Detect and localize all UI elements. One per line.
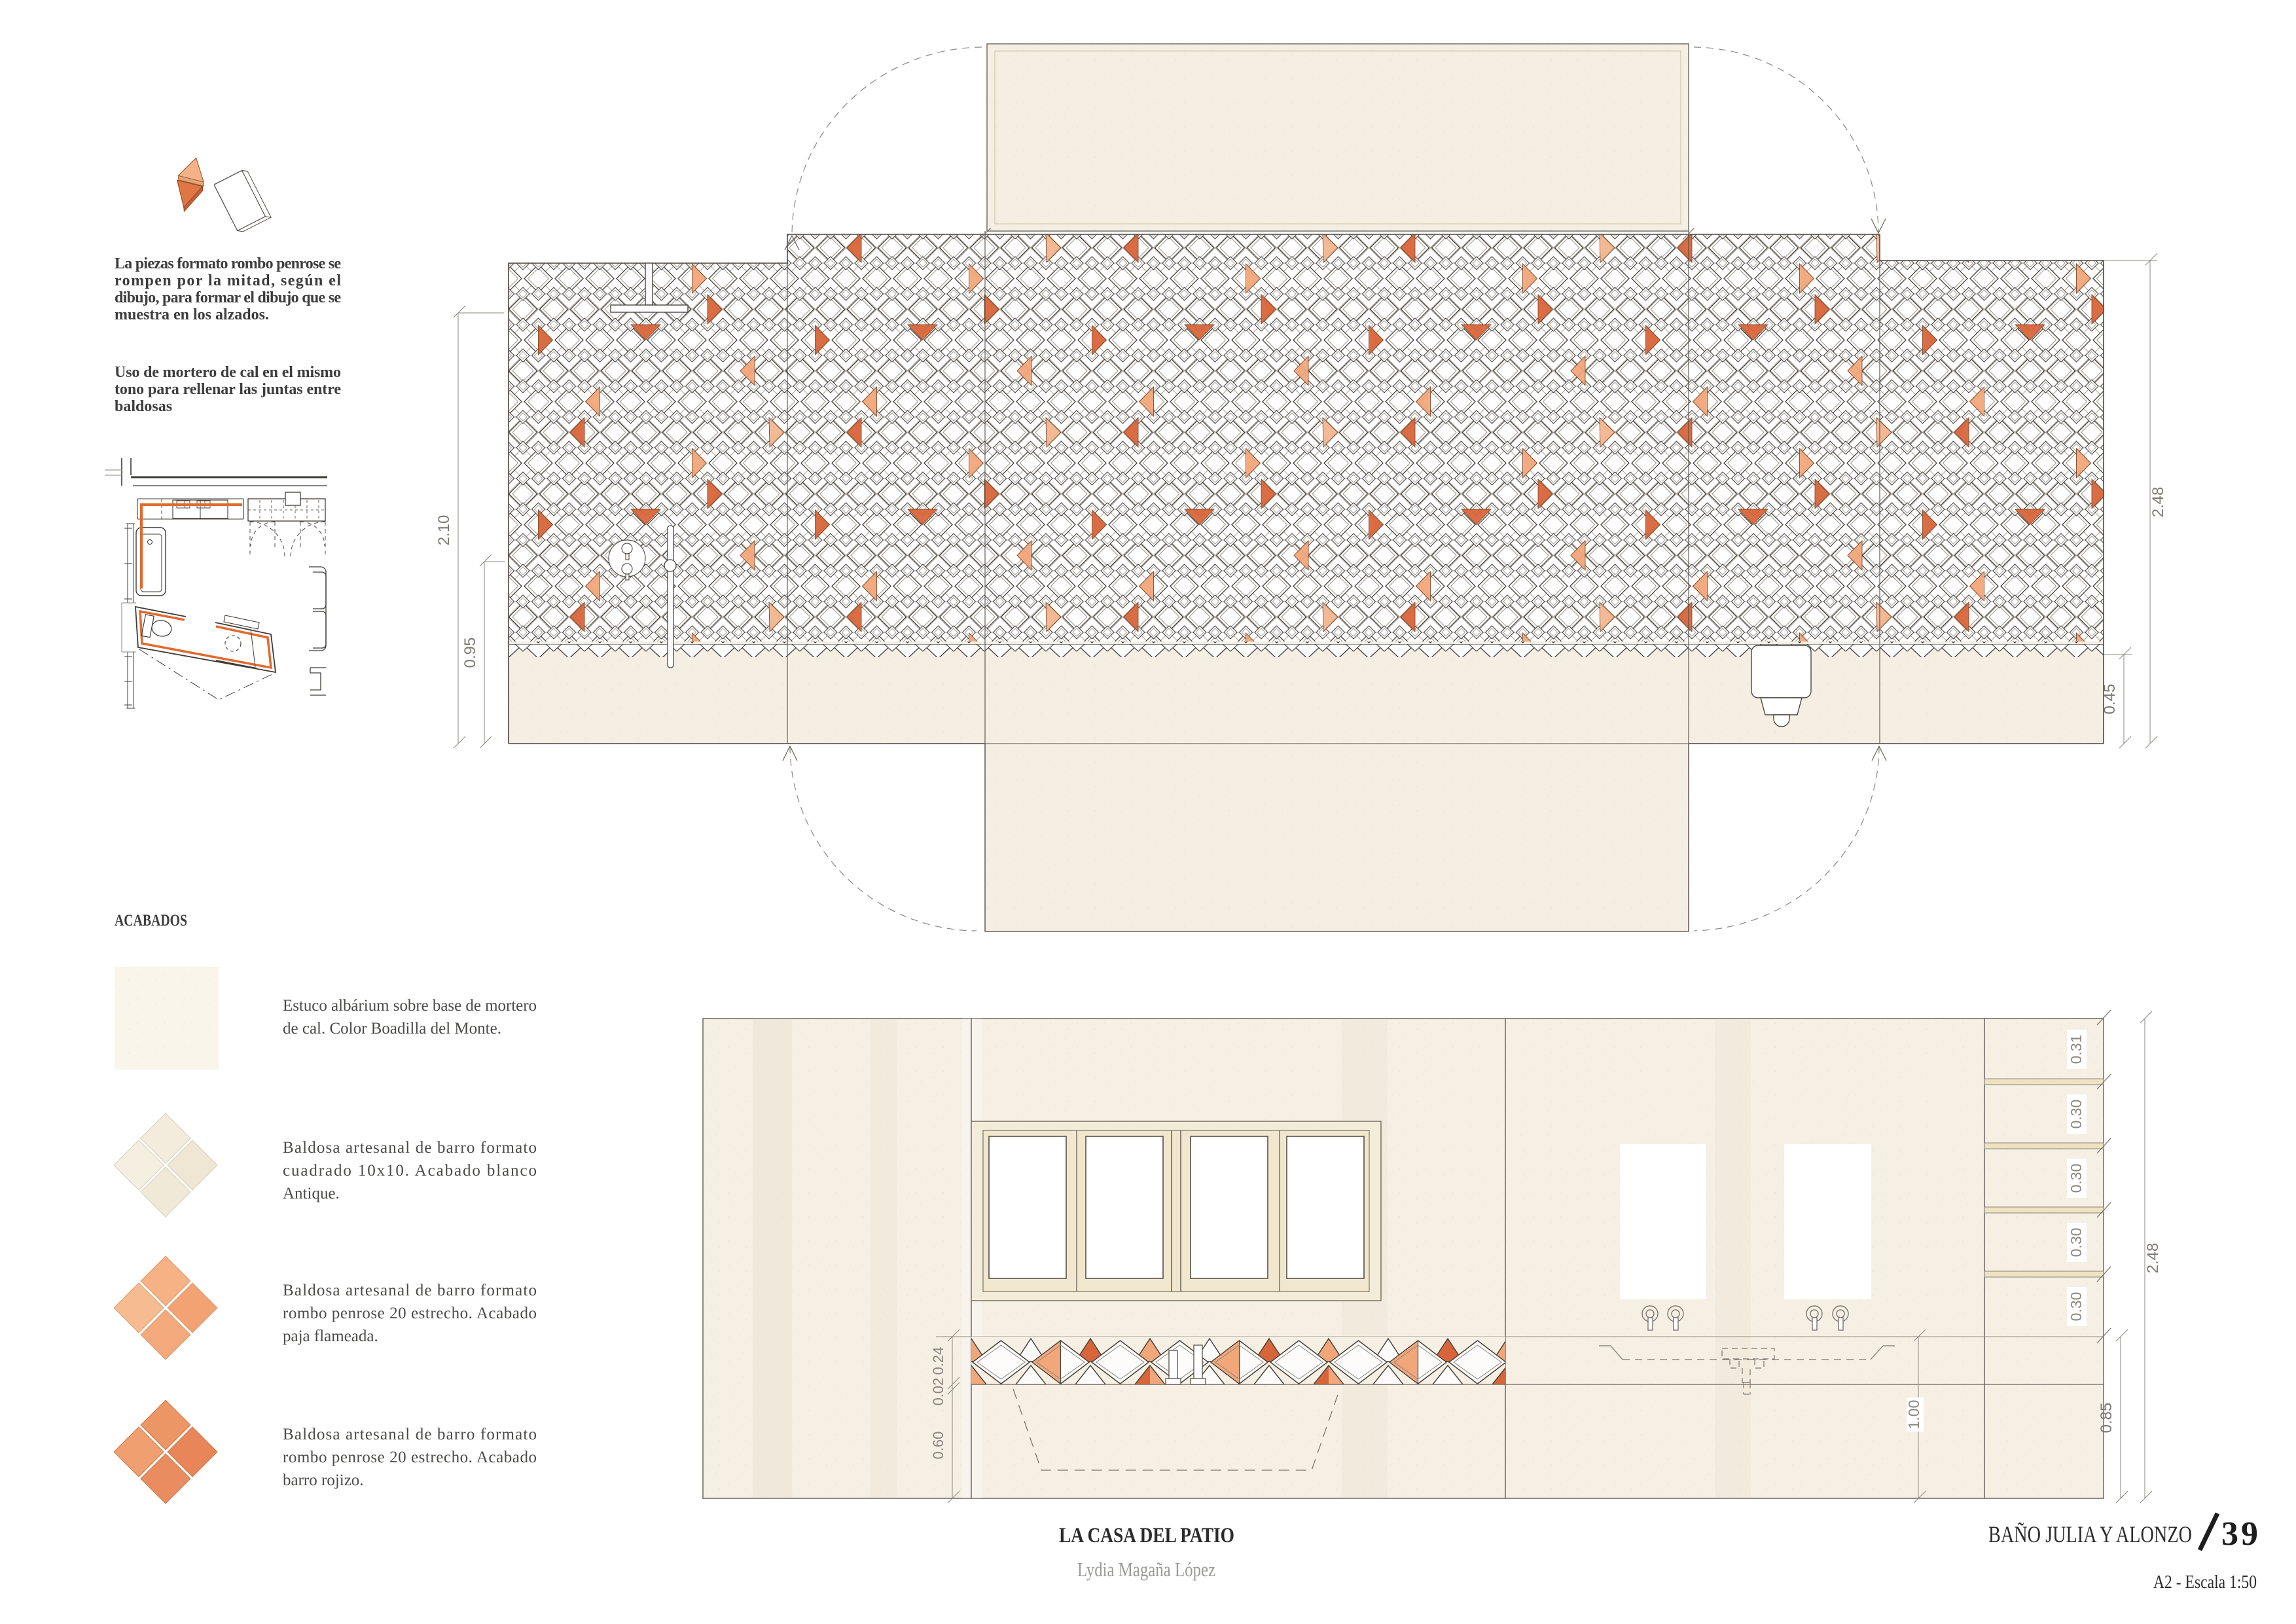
- svg-text:Baldosa artesanal de barro for: Baldosa artesanal de barro formato: [283, 1139, 537, 1157]
- svg-text:rombo penrose 20 estrecho. Aca: rombo penrose 20 estrecho. Acabado: [283, 1449, 537, 1466]
- svg-text:0.31: 0.31: [2068, 1035, 2085, 1064]
- svg-text:0.30: 0.30: [2068, 1100, 2085, 1129]
- svg-text:Uso de mortero de cal en el mi: Uso de mortero de cal en el mismo: [115, 364, 341, 381]
- svg-text:barro rojizo.: barro rojizo.: [283, 1471, 364, 1489]
- svg-text:baldosas: baldosas: [115, 398, 172, 415]
- svg-text:muestra en los alzados.: muestra en los alzados.: [115, 306, 269, 323]
- svg-text:0.24: 0.24: [930, 1347, 946, 1375]
- svg-text:0.60: 0.60: [930, 1432, 946, 1460]
- svg-text:0.45: 0.45: [2101, 684, 2119, 715]
- svg-text:Antique.: Antique.: [283, 1185, 340, 1202]
- svg-text:0.85: 0.85: [2098, 1403, 2115, 1434]
- svg-text:de cal. Color Boadilla del Mon: de cal. Color Boadilla del Monte.: [283, 1020, 501, 1038]
- svg-text:BAÑO JULIA Y ALONZO: BAÑO JULIA Y ALONZO: [1988, 1521, 2192, 1547]
- svg-text:LA CASA DEL PATIO: LA CASA DEL PATIO: [1059, 1524, 1234, 1547]
- svg-text:Lydia Magaña López: Lydia Magaña López: [1077, 1558, 1215, 1581]
- svg-text:rompen por la mitad, según el: rompen por la mitad, según el: [115, 272, 341, 289]
- svg-text:dibujo, para formar el dibujo: dibujo, para formar el dibujo que se: [115, 289, 341, 306]
- svg-text:paja flameada.: paja flameada.: [283, 1327, 378, 1345]
- svg-text:ACABADOS: ACABADOS: [115, 912, 187, 929]
- svg-text:cuadrado 10x10. Acabado blanco: cuadrado 10x10. Acabado blanco: [283, 1162, 537, 1180]
- svg-text:Baldosa artesanal de barro for: Baldosa artesanal de barro formato: [283, 1282, 537, 1299]
- svg-text:Estuco albárium sobre base de: Estuco albárium sobre base de mortero: [283, 997, 537, 1015]
- svg-text:1.00: 1.00: [1905, 1400, 1922, 1430]
- svg-text:0.30: 0.30: [2068, 1228, 2085, 1257]
- svg-text:rombo penrose 20 estrecho. Aca: rombo penrose 20 estrecho. Acabado: [283, 1305, 537, 1322]
- svg-text:A2 - Escala 1:50: A2 - Escala 1:50: [2153, 1572, 2257, 1593]
- svg-text:La piezas formato rombo penros: La piezas formato rombo penrose se: [115, 255, 341, 272]
- svg-text:2.48: 2.48: [2149, 487, 2167, 518]
- svg-text:Baldosa artesanal de barro for: Baldosa artesanal de barro formato: [283, 1426, 537, 1443]
- svg-text:0.30: 0.30: [2068, 1164, 2085, 1193]
- svg-text:0.95: 0.95: [461, 638, 479, 668]
- svg-text:0.02: 0.02: [930, 1378, 946, 1406]
- svg-text:tono para rellenar las juntas: tono para rellenar las juntas entre: [115, 381, 341, 398]
- svg-text:39: 39: [2221, 1515, 2261, 1553]
- svg-text:0.30: 0.30: [2068, 1292, 2085, 1322]
- svg-text:2.48: 2.48: [2144, 1243, 2162, 1274]
- svg-text:2.10: 2.10: [435, 515, 453, 546]
